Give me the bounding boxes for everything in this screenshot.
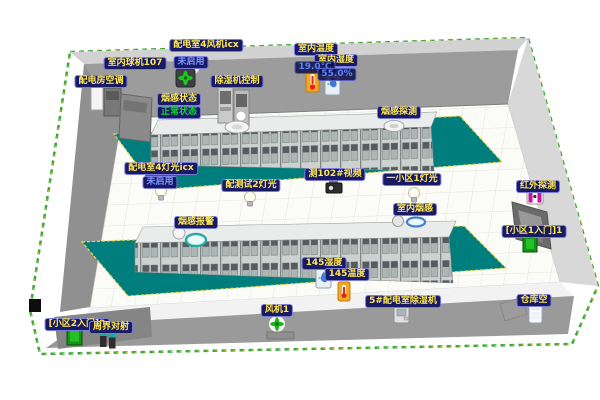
label-temp-145[interactable]: 145温度 — [325, 268, 370, 281]
label-fan-disabled: 未启用 — [173, 56, 208, 69]
label-dehumidifier-control[interactable]: 除湿机控制 — [210, 75, 263, 88]
label-smoke-status[interactable]: 烟感状态 — [157, 93, 201, 106]
label-smoke-detect[interactable]: 烟感探测 — [377, 106, 421, 119]
label-perimeter-beam[interactable]: 周界对射 — [89, 321, 133, 334]
label-indoor-smoke[interactable]: 室内烟感 — [393, 203, 437, 216]
label-test-light2[interactable]: 配测试2灯光 — [221, 179, 280, 192]
floor-fan-icon[interactable] — [269, 316, 286, 333]
label-area1-light1[interactable]: 一小区1灯光 — [382, 173, 441, 186]
label-dist-light4[interactable]: 配电室4灯光icx — [124, 162, 198, 175]
ceiling-fan-icon[interactable] — [176, 69, 195, 87]
label-smoke-alarm[interactable]: 烟感报警 — [174, 216, 218, 229]
scene-canvas — [0, 0, 600, 400]
room-3d-monitor-view: 配电室4风机icx 室内球机107 未启用 除湿机控制 配电房空调 室内温度 室… — [0, 0, 600, 400]
status-badge-normal: 正常状态 — [157, 106, 201, 119]
label-dehumidifier-5[interactable]: 5#配电室除湿机 — [365, 295, 441, 308]
label-dist-room-ac[interactable]: 配电房空调 — [74, 75, 127, 88]
label-warehouse-ac[interactable]: 仓库空 — [516, 294, 551, 307]
left-wall-dark-box — [29, 299, 41, 312]
entry-door-icon[interactable] — [523, 236, 537, 252]
label-fan-1[interactable]: 风机1 — [261, 304, 293, 317]
smoke-sensor-icon[interactable] — [384, 121, 404, 132]
label-gate-area1[interactable]: [小区1入门]1 — [502, 225, 567, 238]
thermometer-icon — [338, 282, 350, 301]
label-indoor-dome-camera[interactable]: 室内球机107 — [104, 57, 167, 70]
label-light-disabled: 未启用 — [142, 176, 177, 189]
value-indoor-humidity: 55.0% — [317, 68, 356, 81]
label-video-102[interactable]: 测102#视频 — [304, 168, 365, 181]
front-step — [267, 332, 294, 339]
label-dist-room-fan[interactable]: 配电室4风机icx — [169, 39, 243, 52]
label-infrared[interactable]: 红外探测 — [516, 180, 560, 193]
